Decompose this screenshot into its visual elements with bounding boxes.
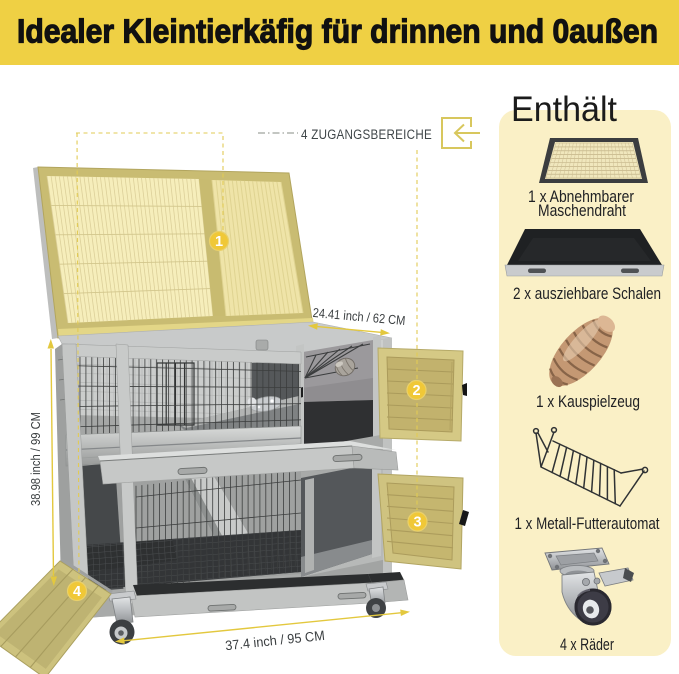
svg-text:Enthält: Enthält [511,90,617,129]
svg-text:4: 4 [73,584,81,600]
svg-text:4 ZUGANGSBEREICHE: 4 ZUGANGSBEREICHE [301,127,432,142]
svg-text:2: 2 [412,383,420,399]
svg-text:Idealer Kleintierkäfig für dri: Idealer Kleintierkäfig für drinnen und 0… [17,13,658,50]
svg-text:2 x ausziehbare Schalen: 2 x ausziehbare Schalen [513,285,661,303]
svg-text:38.98 inch / 99 CM: 38.98 inch / 99 CM [28,412,43,506]
svg-text:3: 3 [413,515,421,531]
svg-text:Maschendraht: Maschendraht [538,202,626,220]
svg-text:4 x Räder: 4 x Räder [560,636,614,654]
svg-text:1: 1 [215,234,223,250]
svg-text:1 x Metall-Futterautomat: 1 x Metall-Futterautomat [515,515,660,533]
svg-text:1 x Kauspielzeug: 1 x Kauspielzeug [536,393,640,411]
